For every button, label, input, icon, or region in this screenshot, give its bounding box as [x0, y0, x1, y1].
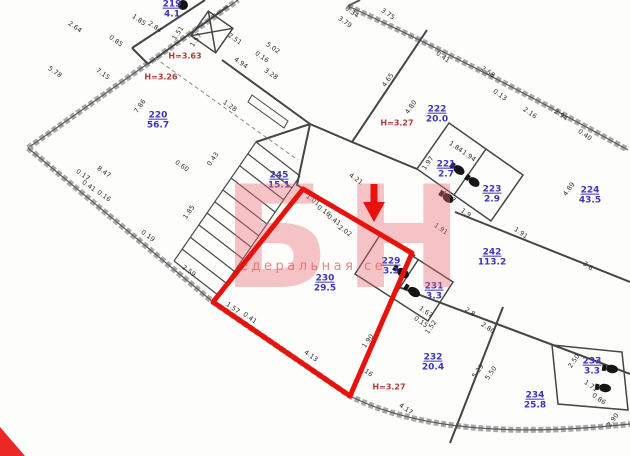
highlighted-room-outline	[213, 189, 412, 396]
down-arrow-icon	[363, 184, 385, 222]
floor-plan: 2194.122056.722220.02212.72232.922443.52…	[0, 0, 630, 456]
highlight-layer	[0, 0, 630, 456]
watermark-corner-mark	[0, 427, 25, 456]
